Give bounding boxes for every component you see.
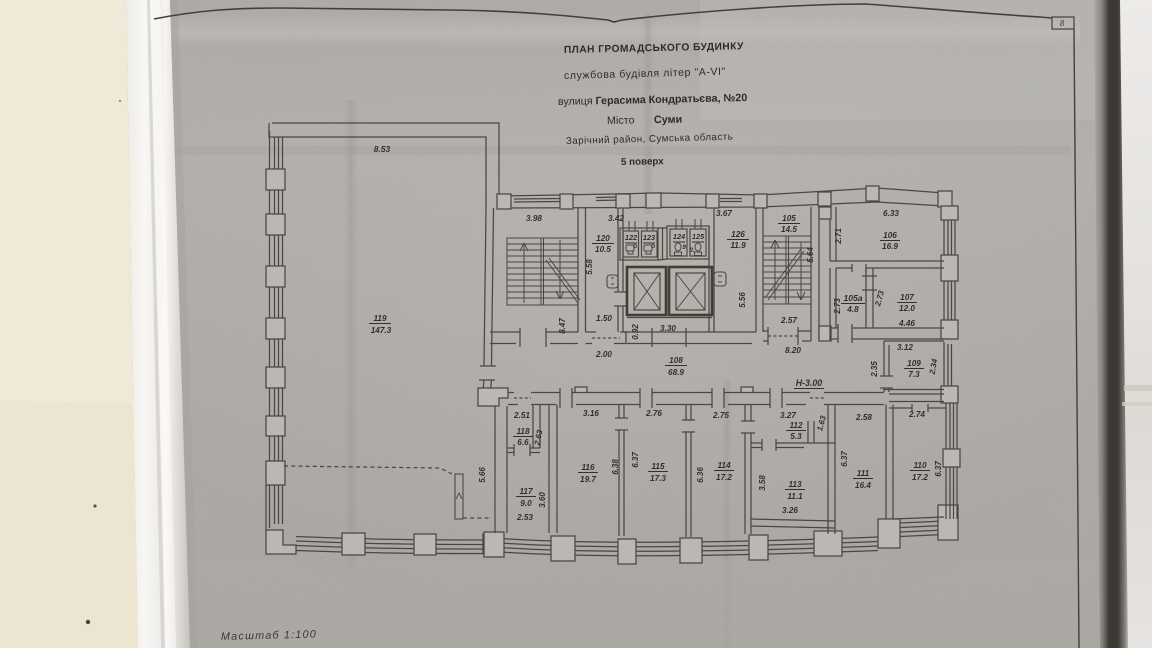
svg-text:1.50: 1.50 <box>596 314 612 323</box>
svg-text:119: 119 <box>373 314 386 323</box>
svg-text:5.58: 5.58 <box>585 259 594 275</box>
svg-text:7.3: 7.3 <box>908 370 920 379</box>
svg-text:4.8: 4.8 <box>846 305 859 314</box>
svg-text:Масштаб 1:100: Масштаб 1:100 <box>221 628 317 643</box>
svg-text:8.53: 8.53 <box>374 144 391 154</box>
svg-text:2.71: 2.71 <box>834 228 843 245</box>
svg-text:5 поверх: 5 поверх <box>621 156 664 168</box>
svg-text:3.42: 3.42 <box>608 214 624 223</box>
svg-text:105: 105 <box>782 214 796 223</box>
svg-text:8.47: 8.47 <box>558 318 567 334</box>
svg-text:6.37: 6.37 <box>631 452 640 468</box>
svg-text:120: 120 <box>596 234 610 243</box>
svg-text:2.57: 2.57 <box>780 316 797 325</box>
svg-text:5.66: 5.66 <box>478 467 487 483</box>
svg-text:3.58: 3.58 <box>758 475 767 491</box>
svg-text:19.7: 19.7 <box>580 475 596 484</box>
svg-text:10.5: 10.5 <box>595 245 611 254</box>
svg-text:107: 107 <box>900 293 914 302</box>
svg-text:117: 117 <box>519 487 532 496</box>
svg-text:8: 8 <box>1060 19 1065 28</box>
svg-text:112: 112 <box>789 421 802 430</box>
svg-text:16.4: 16.4 <box>855 481 871 490</box>
svg-text:4.46: 4.46 <box>898 319 915 328</box>
svg-text:6.38: 6.38 <box>611 459 620 475</box>
svg-text:108: 108 <box>669 356 683 365</box>
svg-text:122: 122 <box>625 233 638 242</box>
svg-text:6.37: 6.37 <box>840 451 849 467</box>
svg-text:105а: 105а <box>843 293 862 303</box>
svg-text:113: 113 <box>788 480 801 489</box>
svg-text:Н-3.00: Н-3.00 <box>796 378 823 388</box>
svg-text:16.9: 16.9 <box>882 242 898 251</box>
svg-text:111: 111 <box>857 469 870 478</box>
svg-text:3.12: 3.12 <box>897 343 913 352</box>
svg-text:3.27: 3.27 <box>780 411 796 420</box>
svg-text:17.2: 17.2 <box>912 473 928 482</box>
svg-text:106: 106 <box>883 231 897 240</box>
svg-text:110: 110 <box>913 461 926 470</box>
svg-text:3.67: 3.67 <box>716 209 732 218</box>
svg-text:2.76: 2.76 <box>645 409 662 418</box>
svg-text:2.58: 2.58 <box>855 413 872 422</box>
svg-text:5.56: 5.56 <box>738 292 747 308</box>
svg-text:8.20: 8.20 <box>785 346 801 355</box>
svg-text:5.64: 5.64 <box>806 247 815 263</box>
svg-text:0.92: 0.92 <box>631 324 640 340</box>
svg-text:6.6: 6.6 <box>517 438 529 447</box>
svg-text:9: 9 <box>682 244 686 251</box>
svg-text:3.60: 3.60 <box>538 492 547 508</box>
svg-text:2.73: 2.73 <box>833 298 842 315</box>
svg-text:114: 114 <box>717 461 730 470</box>
svg-text:0.: 0. <box>689 247 695 254</box>
svg-text:68.9: 68.9 <box>668 368 684 377</box>
svg-text:3.16: 3.16 <box>583 409 599 418</box>
svg-text:125: 125 <box>692 232 705 241</box>
svg-text:147.3: 147.3 <box>371 326 392 335</box>
svg-text:116: 116 <box>581 463 594 472</box>
svg-text:3.30: 3.30 <box>660 324 676 333</box>
svg-text:2.35: 2.35 <box>870 361 879 378</box>
svg-text:3.98: 3.98 <box>526 214 542 223</box>
svg-text:17.3: 17.3 <box>650 474 666 483</box>
svg-text:11.1: 11.1 <box>787 492 803 501</box>
svg-text:115: 115 <box>651 462 664 471</box>
svg-text:6.36: 6.36 <box>696 467 705 483</box>
svg-text:2.00: 2.00 <box>595 350 612 359</box>
svg-text:12.0: 12.0 <box>899 304 915 313</box>
svg-text:126: 126 <box>731 230 745 239</box>
svg-text:5.3: 5.3 <box>790 432 802 441</box>
svg-text:3.26: 3.26 <box>782 506 798 515</box>
svg-text:123: 123 <box>643 233 656 242</box>
svg-text:2.51: 2.51 <box>513 411 530 420</box>
svg-text:124: 124 <box>673 232 685 241</box>
svg-text:2.74: 2.74 <box>908 410 925 419</box>
svg-text:2.75: 2.75 <box>712 411 729 420</box>
svg-text:17.2: 17.2 <box>716 473 732 482</box>
svg-text:6.33: 6.33 <box>883 209 899 218</box>
svg-text:11.9: 11.9 <box>730 241 746 250</box>
svg-text:109: 109 <box>907 359 921 368</box>
svg-text:14.5: 14.5 <box>781 225 797 234</box>
svg-text:9.0: 9.0 <box>520 499 532 508</box>
svg-text:2.53: 2.53 <box>516 513 533 522</box>
svg-text:6.37: 6.37 <box>934 461 943 477</box>
svg-text:118: 118 <box>516 427 529 436</box>
